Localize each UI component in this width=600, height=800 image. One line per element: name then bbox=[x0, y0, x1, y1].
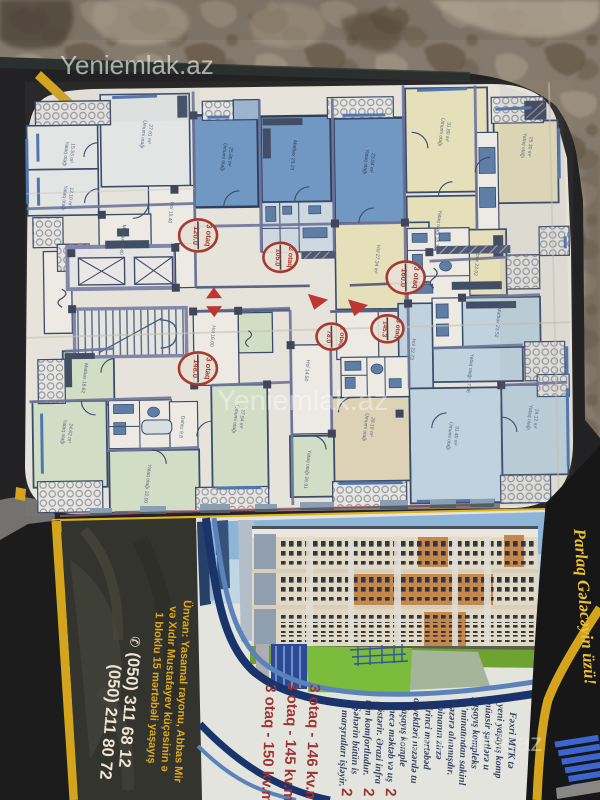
svg-text:Yeniemlak.az: Yeniemlak.az bbox=[60, 50, 214, 80]
svg-text:Yeniemlak.az: Yeniemlak.az bbox=[395, 729, 543, 757]
svg-text:Yeniemlak.az: Yeniemlak.az bbox=[217, 385, 388, 417]
